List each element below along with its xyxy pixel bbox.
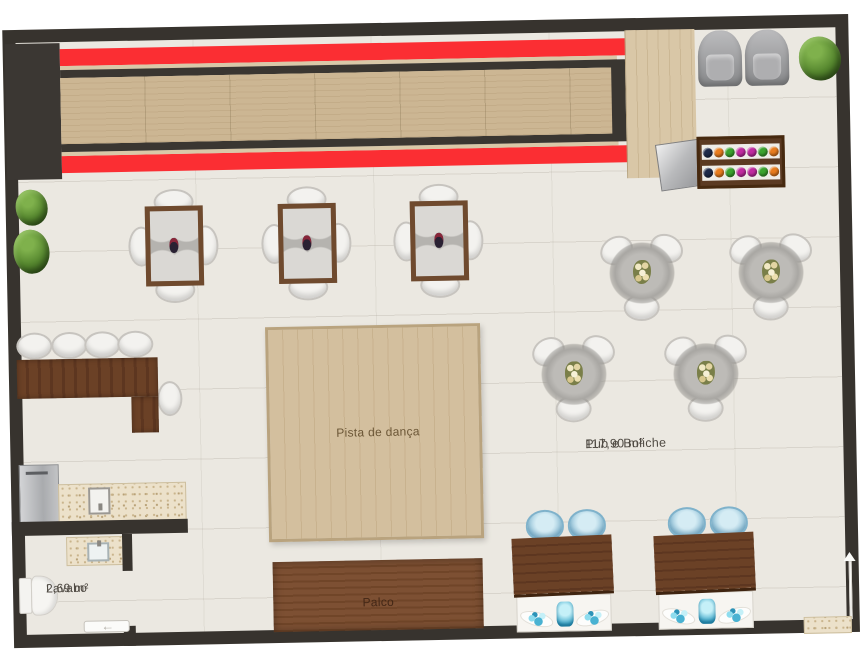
wine-bottle (302, 235, 311, 250)
glass-decor (526, 611, 548, 628)
bar-sink (88, 487, 111, 514)
bowling-ball (758, 167, 768, 177)
plant (15, 189, 48, 226)
wine-bottle (434, 233, 443, 248)
ball-shelf-row (702, 144, 780, 160)
round-table-group (525, 330, 623, 432)
bowling-ball (758, 146, 768, 156)
round-table-group (722, 229, 820, 331)
stage-label: Palco (333, 594, 423, 610)
square-table-group (127, 188, 221, 304)
washroom-area: 2,69 m² (46, 579, 89, 598)
sink-faucet (98, 503, 102, 510)
station-table (653, 532, 755, 592)
door-slide-arrow-icon (843, 552, 855, 561)
floor-plan: ← Lavabo 2,69 m² Pista de dança Palco Pu… (0, 0, 867, 650)
bowling-ball (703, 147, 713, 157)
square-table-group (392, 183, 486, 299)
washroom-vanity (66, 536, 129, 566)
station-display-counter (516, 594, 612, 633)
square-table (410, 200, 470, 281)
bowling-ball (725, 147, 735, 157)
armchair (697, 30, 742, 87)
bar-table-station (512, 509, 614, 633)
main-room-area: 117,90 m² (585, 434, 643, 453)
bar-counter-return (131, 396, 159, 433)
armchair-cushion (753, 53, 781, 80)
bowling-ball (725, 167, 735, 177)
washroom-sliding-door: ← (84, 620, 130, 633)
bowling-ball (714, 168, 724, 178)
refrigerator (19, 464, 60, 523)
glass-decor (556, 601, 573, 626)
round-table-group (593, 229, 691, 331)
bowling-ball (769, 166, 779, 176)
bowling-ball (714, 147, 724, 157)
bowling-ball (747, 147, 757, 157)
station-display-counter (658, 591, 754, 630)
bowling-ball-rack (696, 135, 785, 189)
wine-bottle (169, 238, 178, 253)
back-counter (58, 482, 187, 523)
entrance-threshold (804, 616, 852, 634)
sink-faucet (97, 540, 101, 546)
glass-decor (582, 610, 604, 627)
armchair-cushion (706, 54, 734, 81)
glass-decor (698, 599, 715, 624)
station-table (511, 534, 613, 594)
square-table (278, 203, 338, 284)
glass-decor (667, 608, 689, 625)
door-slide-arrow-icon: ← (89, 618, 127, 635)
washroom-sink (87, 542, 109, 561)
bowling-ball (769, 146, 779, 156)
washroom-partition-wall (122, 534, 133, 571)
bar-table-station (654, 506, 756, 630)
bowling-lane-plank-seams (60, 68, 614, 145)
bowling-ball (747, 167, 757, 177)
bar-counter (17, 357, 159, 399)
ball-shelf-row (702, 164, 780, 180)
refrigerator-handle (26, 471, 48, 474)
bowling-ball (736, 147, 746, 157)
bowling-ball (703, 168, 713, 178)
square-table (145, 205, 205, 286)
dance-floor-label: Pista de dança (308, 424, 448, 441)
bowling-pinsetter-block (5, 43, 63, 180)
round-table-group (657, 330, 755, 432)
glass-decor (723, 607, 745, 624)
square-table-group (260, 186, 354, 302)
bowling-ball (736, 167, 746, 177)
armchair (744, 29, 789, 86)
